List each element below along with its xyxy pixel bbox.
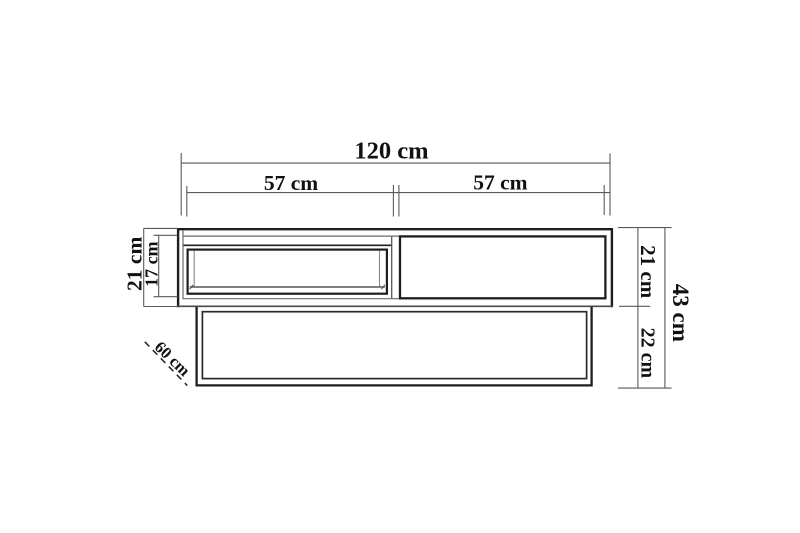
svg-text:21 cm: 21 cm	[636, 245, 660, 299]
svg-text:43 cm: 43 cm	[668, 284, 693, 342]
svg-text:17 cm: 17 cm	[142, 241, 162, 286]
svg-text:22 cm: 22 cm	[637, 328, 659, 379]
svg-text:57 cm: 57 cm	[473, 170, 527, 194]
svg-text:57 cm: 57 cm	[264, 171, 318, 195]
svg-text:120 cm: 120 cm	[354, 138, 428, 165]
